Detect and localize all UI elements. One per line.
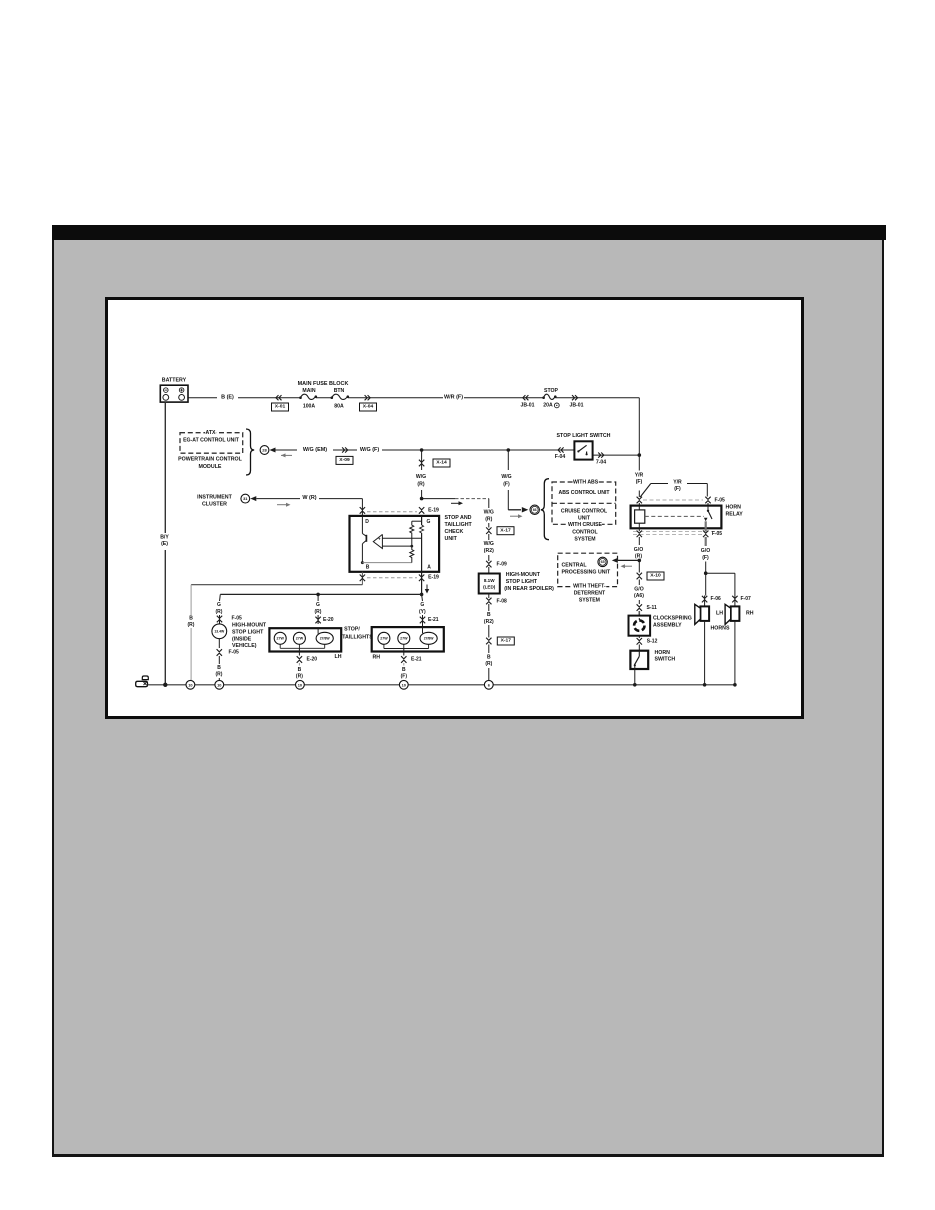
svg-text:(R2): (R2) bbox=[484, 619, 494, 625]
svg-text:X-04: X-04 bbox=[363, 404, 374, 410]
svg-text:F-09: F-09 bbox=[497, 561, 508, 567]
svg-text:(INSIDE: (INSIDE bbox=[232, 636, 252, 642]
svg-text:BTN: BTN bbox=[334, 388, 345, 394]
svg-text:B: B bbox=[402, 667, 406, 673]
svg-text:G: G bbox=[217, 602, 221, 608]
svg-text:8.1W: 8.1W bbox=[484, 578, 495, 583]
svg-text:G: G bbox=[316, 602, 320, 608]
svg-text:100A: 100A bbox=[303, 403, 316, 409]
svg-text:E-20: E-20 bbox=[323, 617, 334, 623]
svg-text:27W: 27W bbox=[400, 637, 408, 641]
svg-text:13.4W: 13.4W bbox=[214, 630, 225, 634]
svg-text:F-07: F-07 bbox=[741, 596, 752, 602]
svg-text:WITH THEFT-: WITH THEFT- bbox=[573, 584, 606, 590]
svg-text:W/G (F): W/G (F) bbox=[360, 447, 380, 453]
svg-text:HORN: HORN bbox=[726, 505, 742, 511]
svg-text:(F): (F) bbox=[636, 479, 643, 485]
svg-text:Y/R: Y/R bbox=[635, 472, 644, 478]
svg-text:27/8W: 27/8W bbox=[424, 637, 435, 641]
svg-text:B: B bbox=[487, 612, 491, 618]
svg-text:F-08: F-08 bbox=[497, 598, 508, 604]
svg-text:STOP LIGHT: STOP LIGHT bbox=[232, 629, 264, 635]
svg-text:(E): (E) bbox=[161, 541, 168, 547]
svg-text:66: 66 bbox=[533, 508, 537, 512]
svg-text:Y/R: Y/R bbox=[673, 479, 682, 485]
svg-text:F-06: F-06 bbox=[711, 596, 722, 602]
svg-text:TAILLIGHTS: TAILLIGHTS bbox=[342, 635, 373, 641]
svg-text:65: 65 bbox=[601, 560, 605, 564]
svg-text:20A: 20A bbox=[543, 403, 553, 409]
svg-text:F-05: F-05 bbox=[715, 498, 726, 504]
svg-text:B/Y: B/Y bbox=[160, 534, 169, 540]
svg-text:W/G: W/G bbox=[501, 474, 511, 480]
svg-text:80A: 80A bbox=[334, 403, 344, 409]
svg-text:CLOCKSPRING: CLOCKSPRING bbox=[653, 616, 692, 622]
svg-text:F-04: F-04 bbox=[555, 454, 566, 460]
svg-text:A: A bbox=[427, 565, 431, 571]
svg-text:F-05: F-05 bbox=[229, 650, 240, 656]
svg-text:(R): (R) bbox=[315, 609, 322, 615]
svg-text:E-19: E-19 bbox=[428, 508, 439, 514]
svg-text:EG-AT CONTROL UNIT: EG-AT CONTROL UNIT bbox=[183, 438, 240, 444]
svg-text:B: B bbox=[366, 565, 370, 571]
svg-text:10: 10 bbox=[402, 682, 406, 687]
svg-text:G/O: G/O bbox=[634, 587, 643, 593]
svg-text:SWITCH: SWITCH bbox=[655, 657, 676, 663]
svg-text:E-20: E-20 bbox=[307, 657, 318, 663]
svg-text:(R): (R) bbox=[216, 672, 223, 678]
svg-text:CENTRAL: CENTRAL bbox=[562, 563, 588, 569]
svg-text:F-05: F-05 bbox=[712, 531, 723, 537]
svg-text:WITH ABS: WITH ABS bbox=[573, 480, 599, 486]
svg-text:E-21: E-21 bbox=[411, 657, 422, 663]
svg-text:ATX: ATX bbox=[206, 430, 216, 436]
svg-text:G/O: G/O bbox=[701, 548, 710, 554]
svg-text:(A6): (A6) bbox=[634, 593, 644, 599]
svg-text:B: B bbox=[217, 665, 221, 671]
svg-text:(R): (R) bbox=[296, 673, 303, 679]
svg-text:W (R): W (R) bbox=[302, 495, 316, 501]
svg-text:(R): (R) bbox=[216, 609, 223, 615]
svg-text:HORNS: HORNS bbox=[711, 626, 730, 632]
svg-text:SYSTEM: SYSTEM bbox=[574, 537, 595, 543]
svg-text:STOP LIGHT SWITCH: STOP LIGHT SWITCH bbox=[557, 433, 611, 439]
svg-text:(F): (F) bbox=[702, 555, 709, 561]
svg-text:CRUISE CONTROL: CRUISE CONTROL bbox=[561, 509, 607, 515]
svg-text:X-17: X-17 bbox=[500, 527, 511, 533]
svg-text:(F): (F) bbox=[401, 673, 408, 679]
svg-text:WITH CRUISE: WITH CRUISE bbox=[568, 522, 603, 528]
svg-text:(R): (R) bbox=[417, 481, 424, 487]
svg-text:10: 10 bbox=[217, 682, 221, 687]
svg-text:F-05: F-05 bbox=[232, 615, 243, 621]
svg-text:HIGH-MOUNT: HIGH-MOUNT bbox=[232, 623, 267, 629]
svg-text:31: 31 bbox=[243, 496, 248, 501]
svg-text:10: 10 bbox=[298, 682, 302, 687]
svg-text:TAILLIGHT: TAILLIGHT bbox=[445, 522, 473, 528]
svg-text:CHECK: CHECK bbox=[445, 529, 464, 535]
svg-text:(F): (F) bbox=[674, 486, 681, 492]
svg-text:POWERTRAIN CONTROL: POWERTRAIN CONTROL bbox=[178, 457, 243, 463]
svg-text:CLUSTER: CLUSTER bbox=[202, 502, 227, 508]
svg-text:E-19: E-19 bbox=[428, 575, 439, 581]
svg-text:HIGH-MOUNT: HIGH-MOUNT bbox=[506, 572, 541, 578]
svg-text:HORN: HORN bbox=[655, 650, 671, 656]
svg-text:BATTERY: BATTERY bbox=[162, 377, 187, 383]
svg-text:RELAY: RELAY bbox=[726, 511, 744, 517]
svg-text:ASSEMBLY: ASSEMBLY bbox=[653, 622, 682, 628]
svg-text:10: 10 bbox=[188, 682, 192, 687]
svg-text:STOP: STOP bbox=[544, 388, 558, 394]
svg-text:UNIT: UNIT bbox=[445, 536, 458, 542]
svg-text:S-12: S-12 bbox=[647, 638, 658, 644]
svg-text:G: G bbox=[427, 519, 431, 525]
svg-text:B (E): B (E) bbox=[221, 395, 234, 401]
svg-text:STOP/: STOP/ bbox=[344, 627, 360, 633]
svg-text:LH: LH bbox=[335, 654, 342, 660]
svg-text:G/O: G/O bbox=[634, 547, 643, 553]
svg-text:27W: 27W bbox=[277, 637, 285, 641]
svg-text:RH: RH bbox=[373, 654, 381, 660]
svg-text:W/G: W/G bbox=[416, 474, 426, 480]
svg-text:CONTROL: CONTROL bbox=[572, 530, 597, 536]
svg-text:X-10: X-10 bbox=[650, 573, 661, 579]
svg-text:DETERRENT: DETERRENT bbox=[574, 591, 606, 597]
svg-text:RH: RH bbox=[746, 611, 754, 617]
svg-text:W/G: W/G bbox=[484, 510, 494, 516]
svg-text:(F): (F) bbox=[503, 481, 510, 487]
svg-text:E-21: E-21 bbox=[428, 617, 439, 623]
svg-text:X-01: X-01 bbox=[275, 404, 286, 410]
svg-text:X-17: X-17 bbox=[501, 638, 512, 644]
svg-text:MAIN: MAIN bbox=[302, 388, 315, 394]
svg-text:W/G (EM): W/G (EM) bbox=[303, 447, 327, 453]
svg-text:W/R (F): W/R (F) bbox=[444, 395, 463, 401]
svg-text:(R2): (R2) bbox=[484, 548, 494, 554]
svg-text:27W: 27W bbox=[380, 637, 388, 641]
svg-text:INSTRUMENT: INSTRUMENT bbox=[197, 494, 232, 500]
svg-text:B: B bbox=[487, 655, 491, 661]
svg-text:JB-01: JB-01 bbox=[569, 402, 583, 408]
svg-text:VEHICLE): VEHICLE) bbox=[232, 643, 257, 649]
svg-text:7-04: 7-04 bbox=[596, 459, 606, 465]
svg-text:(IN REAR SPOILER): (IN REAR SPOILER) bbox=[504, 586, 554, 592]
svg-text:SYSTEM: SYSTEM bbox=[579, 597, 600, 603]
svg-text:(LED): (LED) bbox=[483, 585, 496, 590]
svg-text:X-09: X-09 bbox=[339, 457, 350, 463]
svg-text:(R): (R) bbox=[635, 554, 642, 560]
svg-text:MODULE: MODULE bbox=[199, 464, 222, 470]
svg-text:(R): (R) bbox=[188, 622, 195, 628]
svg-text:W/G: W/G bbox=[484, 541, 494, 547]
svg-text:JB-01: JB-01 bbox=[520, 402, 534, 408]
svg-text:27W: 27W bbox=[296, 637, 304, 641]
svg-text:LH: LH bbox=[716, 611, 723, 617]
svg-text:PROCESSING UNIT: PROCESSING UNIT bbox=[562, 570, 612, 576]
svg-text:X-14: X-14 bbox=[436, 460, 447, 466]
svg-text:D: D bbox=[365, 519, 369, 525]
svg-text:ABS CONTROL UNIT: ABS CONTROL UNIT bbox=[558, 490, 610, 496]
svg-text:(Y): (Y) bbox=[419, 609, 426, 615]
svg-text:STOP LIGHT: STOP LIGHT bbox=[506, 579, 538, 585]
svg-text:STOP AND: STOP AND bbox=[445, 515, 472, 521]
svg-text:(R): (R) bbox=[485, 517, 492, 523]
svg-text:S-11: S-11 bbox=[647, 605, 658, 611]
svg-text:28: 28 bbox=[262, 448, 267, 453]
svg-text:(R): (R) bbox=[485, 661, 492, 667]
svg-text:27/8W: 27/8W bbox=[320, 637, 331, 641]
svg-text:G: G bbox=[420, 602, 424, 608]
svg-text:B: B bbox=[298, 667, 302, 673]
svg-text:UNIT: UNIT bbox=[578, 515, 591, 521]
svg-text:MAIN FUSE BLOCK: MAIN FUSE BLOCK bbox=[298, 381, 349, 387]
svg-text:B: B bbox=[189, 616, 193, 622]
